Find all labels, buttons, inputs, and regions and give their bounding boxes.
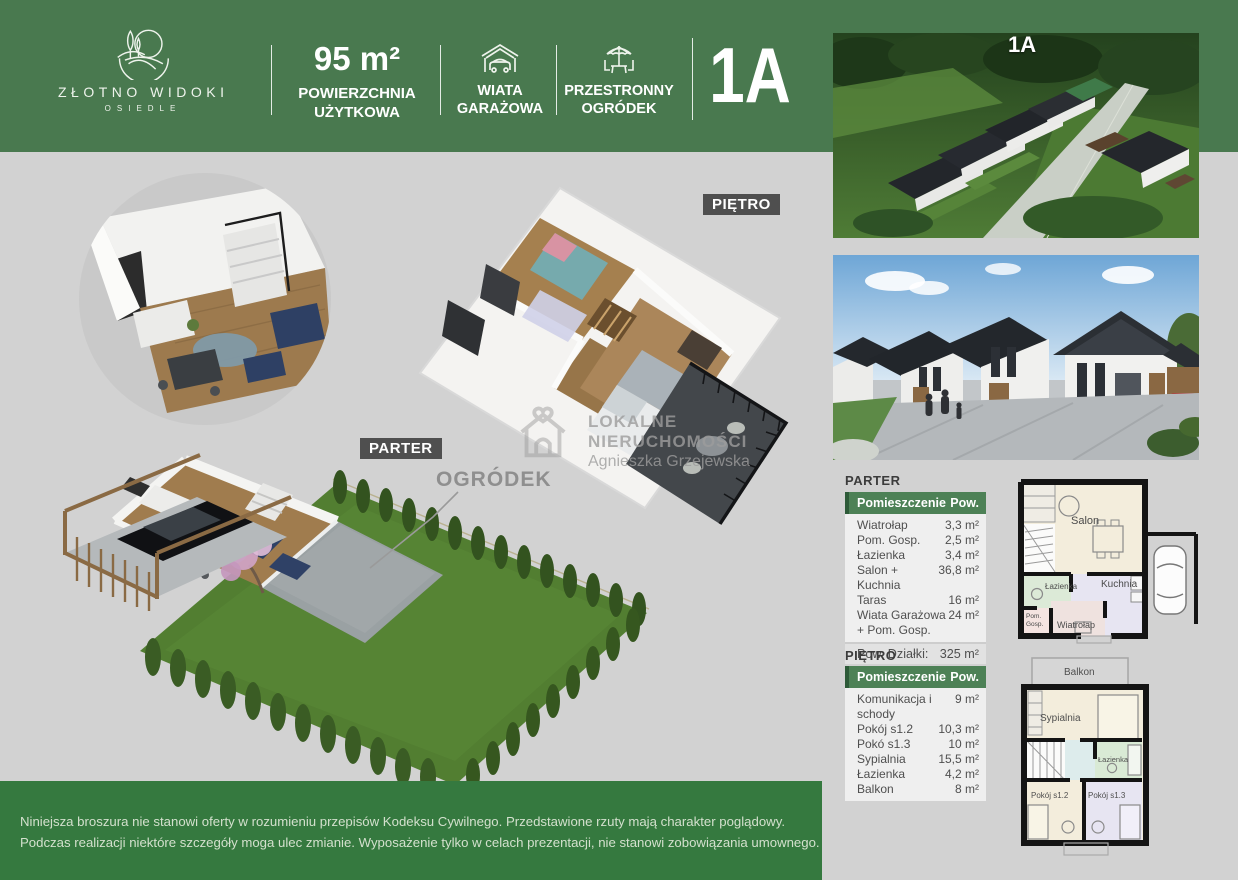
svg-text:Gosp.: Gosp. <box>1026 621 1044 628</box>
table-row: Łazienka3,4 m² <box>845 548 986 563</box>
svg-text:Sypialnia: Sypialnia <box>1040 713 1081 724</box>
brochure-page: ZŁOTNO WIDOKI OSIEDLE 95 m² POWIERZCHNIA… <box>0 0 1238 880</box>
table-body: Komunikacja i schody9 m² Pokój s1.210,3 … <box>845 688 986 801</box>
feature-garden: PRZESTRONNY OGRÓDEK <box>558 42 680 118</box>
feature-garage: WIATA GARAŻOWA <box>446 42 554 118</box>
table-header-row: Pomieszczenie Pow. <box>845 492 986 514</box>
table-row: Balkon8 m² <box>845 782 986 797</box>
svg-text:Kuchnia: Kuchnia <box>1101 579 1138 590</box>
feature-garage-label: WIATA GARAŻOWA <box>446 82 554 118</box>
table-row: Wiatrołap3,3 m² <box>845 518 986 533</box>
pietro-2d-plan: Balkon Sypialnia Łazienka Pokój s1.2 Pok… <box>1020 655 1152 880</box>
area-value: 95 m² <box>282 40 432 78</box>
table-row: Wiata Garażowa + Pom. Gosp.24 m² <box>845 608 986 638</box>
table-row: Taras16 m² <box>845 593 986 608</box>
table-row: Pom. Gosp.2,5 m² <box>845 533 986 548</box>
pietro-3d-label: PIĘTRO <box>703 194 780 215</box>
table-row: Sypialnia15,5 m² <box>845 752 986 767</box>
area-label: POWIERZCHNIA UŻYTKOWA <box>282 85 432 123</box>
table-row: Salon + Kuchnia36,8 m² <box>845 563 986 593</box>
aerial-unit-badge: 1A <box>1008 32 1036 58</box>
table-row: Pokój s1.210,3 m² <box>845 722 986 737</box>
interior-circle-inset <box>75 173 335 433</box>
svg-text:Pom.: Pom. <box>1026 613 1041 620</box>
table-body: Wiatrołap3,3 m² Pom. Gosp.2,5 m² Łazienk… <box>845 514 986 642</box>
aerial-photo <box>833 33 1199 238</box>
parter-table-title: PARTER <box>845 473 900 488</box>
svg-text:Pokój s1.3: Pokój s1.3 <box>1088 791 1126 800</box>
header-divider <box>556 45 557 115</box>
table-row: Pokó s1.310 m² <box>845 737 986 752</box>
logo-subtitle: OSIEDLE <box>58 104 228 113</box>
pietro-table-title: PIĘTRO <box>845 648 896 663</box>
table-row: Łazienka4,2 m² <box>845 767 986 782</box>
feature-garden-label: PRZESTRONNY OGRÓDEK <box>558 82 680 118</box>
usable-area: 95 m² POWIERZCHNIA UŻYTKOWA <box>282 40 432 123</box>
svg-text:Łazienka: Łazienka <box>1098 755 1129 764</box>
parter-2d-plan: Salon Łazienka Kuchnia Pom. Gosp. Wiatro… <box>1013 476 1203 644</box>
parter-3d-label: PARTER <box>360 438 442 459</box>
footer-band: Niniejsza broszura nie stanowi oferty w … <box>0 781 822 880</box>
pietro-table: Pomieszczenie Pow. Komunikacja i schody9… <box>845 666 986 801</box>
svg-text:Salon: Salon <box>1071 515 1099 527</box>
svg-text:Wiatrołap: Wiatrołap <box>1057 620 1095 630</box>
svg-text:Łazienka: Łazienka <box>1045 582 1078 591</box>
table-header-row: Pomieszczenie Pow. <box>845 666 986 688</box>
watermark: LOKALNE NIERUCHOMOŚCI Agnieszka Grzejews… <box>512 402 750 472</box>
garden-umbrella-icon <box>599 42 639 76</box>
disclaimer: Niniejsza broszura nie stanowi oferty w … <box>20 811 820 853</box>
parter-table: Pomieszczenie Pow. Wiatrołap3,3 m² Pom. … <box>845 492 986 664</box>
estate-logo-icon <box>110 24 176 80</box>
logo-title: ZŁOTNO WIDOKI <box>58 84 228 100</box>
street-photo <box>833 255 1199 460</box>
svg-text:Pokój s1.2: Pokój s1.2 <box>1031 791 1069 800</box>
header-divider <box>271 45 272 115</box>
table-row: Komunikacja i schody9 m² <box>845 692 986 722</box>
svg-text:Balkon: Balkon <box>1064 667 1095 678</box>
unit-number: 1A <box>709 30 791 121</box>
header-divider <box>692 38 693 120</box>
carport-icon <box>480 42 520 76</box>
house-heart-watermark-icon <box>512 402 574 464</box>
watermark-text: LOKALNE NIERUCHOMOŚCI Agnieszka Grzejews… <box>588 412 750 472</box>
logo: ZŁOTNO WIDOKI OSIEDLE <box>58 24 228 113</box>
header-divider <box>440 45 441 115</box>
